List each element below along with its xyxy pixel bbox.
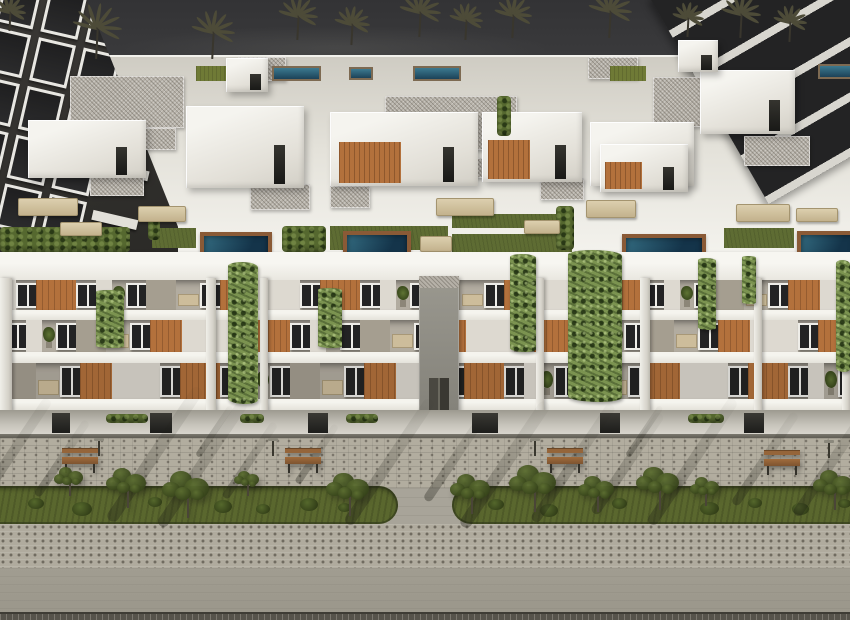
tree-foliage	[72, 478, 80, 485]
tree-foliage	[522, 481, 538, 494]
bush	[148, 497, 162, 507]
bush	[748, 498, 762, 508]
tree-foliage	[698, 487, 708, 495]
tree	[509, 463, 561, 515]
street-lamp	[268, 438, 278, 456]
bench-leg	[578, 464, 580, 473]
tree-foliage	[538, 483, 551, 494]
tree-foliage	[175, 487, 191, 500]
bench-leg	[288, 464, 290, 473]
bench-seat	[62, 457, 98, 464]
bench-back	[764, 450, 800, 455]
bench-leg	[795, 466, 797, 475]
architectural-render	[0, 0, 850, 620]
tree	[690, 476, 722, 508]
bush	[72, 502, 92, 516]
tree	[578, 474, 618, 514]
tree	[106, 466, 150, 510]
tree-foliage	[62, 477, 72, 485]
bush	[28, 498, 44, 509]
tree-foliage	[191, 489, 204, 500]
tree-foliage	[249, 481, 256, 487]
tree	[326, 470, 374, 518]
bench-seat	[285, 457, 321, 464]
tree-foliage	[662, 484, 674, 494]
tree	[162, 469, 214, 521]
bench	[285, 448, 321, 473]
bench-seat	[764, 459, 800, 466]
street-lamp	[94, 438, 104, 456]
tree-shadow	[625, 405, 664, 458]
bench-back	[285, 448, 321, 453]
bench-leg	[767, 466, 769, 475]
tree	[813, 468, 850, 512]
bench-back	[547, 448, 583, 453]
tree-foliage	[588, 488, 600, 498]
street-lamp	[530, 438, 540, 456]
bench-back	[62, 448, 98, 453]
bush	[214, 500, 232, 513]
tree-foliage	[117, 482, 130, 493]
tree-foliage	[461, 488, 474, 499]
tree-foliage	[352, 490, 364, 500]
tree-foliage	[130, 484, 141, 493]
tree	[636, 464, 684, 512]
bench-leg	[316, 464, 318, 473]
tree-foliage	[824, 484, 837, 495]
tree-foliage	[474, 490, 485, 499]
bush	[300, 498, 318, 511]
bench-leg	[93, 464, 95, 473]
tree-foliage	[708, 488, 716, 495]
tree	[234, 469, 262, 497]
tree-foliage	[600, 490, 610, 499]
street-lamp	[824, 440, 834, 458]
tree	[54, 466, 86, 498]
street-furniture-layer	[0, 0, 850, 620]
bush	[256, 504, 270, 514]
bench	[764, 450, 800, 475]
tree	[450, 472, 494, 516]
tree-foliage	[837, 486, 848, 495]
